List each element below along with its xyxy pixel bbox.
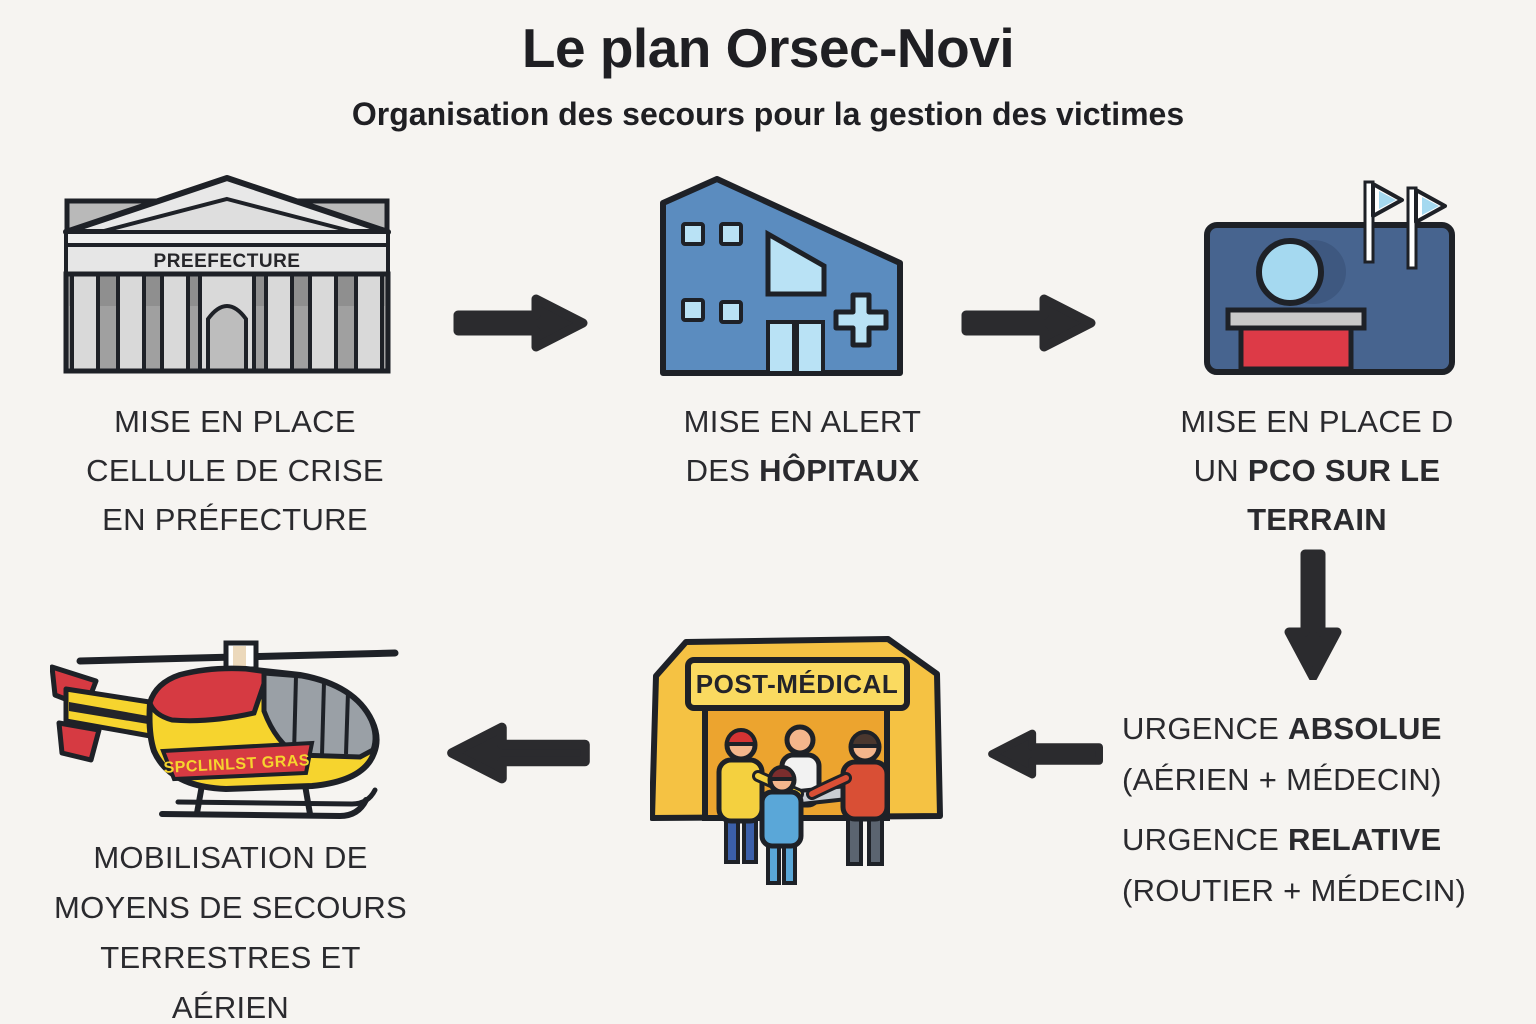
urgences-text-block: URGENCE ABSOLUE (AÉRIEN + MÉDECIN) URGEN… [1122,703,1482,916]
prefecture-building-icon: PREEFECTURE [62,174,392,374]
page-subtitle: Organisation des secours pour la gestion… [0,96,1536,133]
caption-line: URGENCE ABSOLUE [1122,703,1482,754]
caption-part: (AÉRIEN + MÉDECIN) [1122,762,1442,797]
arrow-urgences-to-medical-post-icon [986,722,1106,786]
caption-part: PCO SUR LE [1248,453,1440,488]
caption-line: DES HÔPITAUX [615,446,990,495]
caption-part: URGENCE [1122,822,1288,857]
caption-line: UN PCO SUR LE [1128,446,1506,495]
caption-part: MOYENS DE SECOURS [54,890,407,925]
caption-part: RELATIVE [1288,822,1441,857]
arrow-prefecture-to-hospital-icon [450,292,590,354]
pco-command-post-icon [1200,180,1470,380]
caption-hospital: MISE EN ALERT DES HÔPITAUX [615,397,990,495]
caption-line: (AÉRIEN + MÉDECIN) [1122,754,1482,805]
caption-part: MISE EN PLACE [114,404,356,439]
caption-part: DES [686,453,760,488]
prefecture-sign-label: PREEFECTURE [154,251,301,272]
caption-line: TERRAIN [1128,495,1506,544]
caption-line: CELLULE DE CRISE [40,446,430,495]
arrow-hospital-to-pco-icon [958,292,1098,354]
caption-pco: MISE EN PLACE D UN PCO SUR LE TERRAIN [1128,397,1506,544]
orsec-novi-infographic: Le plan Orsec-Novi Organisation des seco… [0,0,1536,1024]
caption-part: ABSOLUE [1288,711,1442,746]
caption-line: MOBILISATION DE [28,833,433,883]
caption-part: HÔPITAUX [759,453,919,488]
caption-helicopter: MOBILISATION DE MOYENS DE SECOURS TERRES… [28,833,433,1024]
medical-tent-icon: POST-MÉDICAL [650,628,945,886]
page-title: Le plan Orsec-Novi [0,16,1536,80]
caption-part: TERRAIN [1247,502,1387,537]
caption-line: EN PRÉFECTURE [40,495,430,544]
arrow-pco-to-urgences-icon [1281,546,1345,680]
caption-part: EN PRÉFECTURE [102,502,368,537]
caption-line: (ROUTIER + MÉDECIN) [1122,865,1482,916]
caption-part: MOBILISATION DE [93,840,367,875]
caption-prefecture: MISE EN PLACE CELLULE DE CRISE EN PRÉFEC… [40,397,430,544]
hospital-icon [658,176,905,382]
caption-part: (ROUTIER + MÉDECIN) [1122,873,1466,908]
caption-part: TERRESTRES ET [100,940,361,975]
caption-part: MISE EN ALERT [684,404,922,439]
caption-line: MISE EN PLACE [40,397,430,446]
caption-line: MISE EN PLACE D [1128,397,1506,446]
caption-line: TERRESTRES ET [28,933,433,983]
caption-part: MISE EN PLACE D [1180,404,1453,439]
caption-line: MISE EN ALERT [615,397,990,446]
caption-part: CELLULE DE CRISE [86,453,384,488]
helicopter-icon: SPCLINLST GRAS [50,633,405,828]
tent-sign-label: POST-MÉDICAL [696,669,898,699]
caption-line: AÉRIEN [28,983,433,1024]
caption-part: AÉRIEN [172,990,289,1024]
arrow-medical-post-to-helicopter-icon [443,720,595,786]
caption-line: MOYENS DE SECOURS [28,883,433,933]
caption-line: URGENCE RELATIVE [1122,814,1482,865]
caption-part: UN [1194,453,1248,488]
caption-part: URGENCE [1122,711,1288,746]
